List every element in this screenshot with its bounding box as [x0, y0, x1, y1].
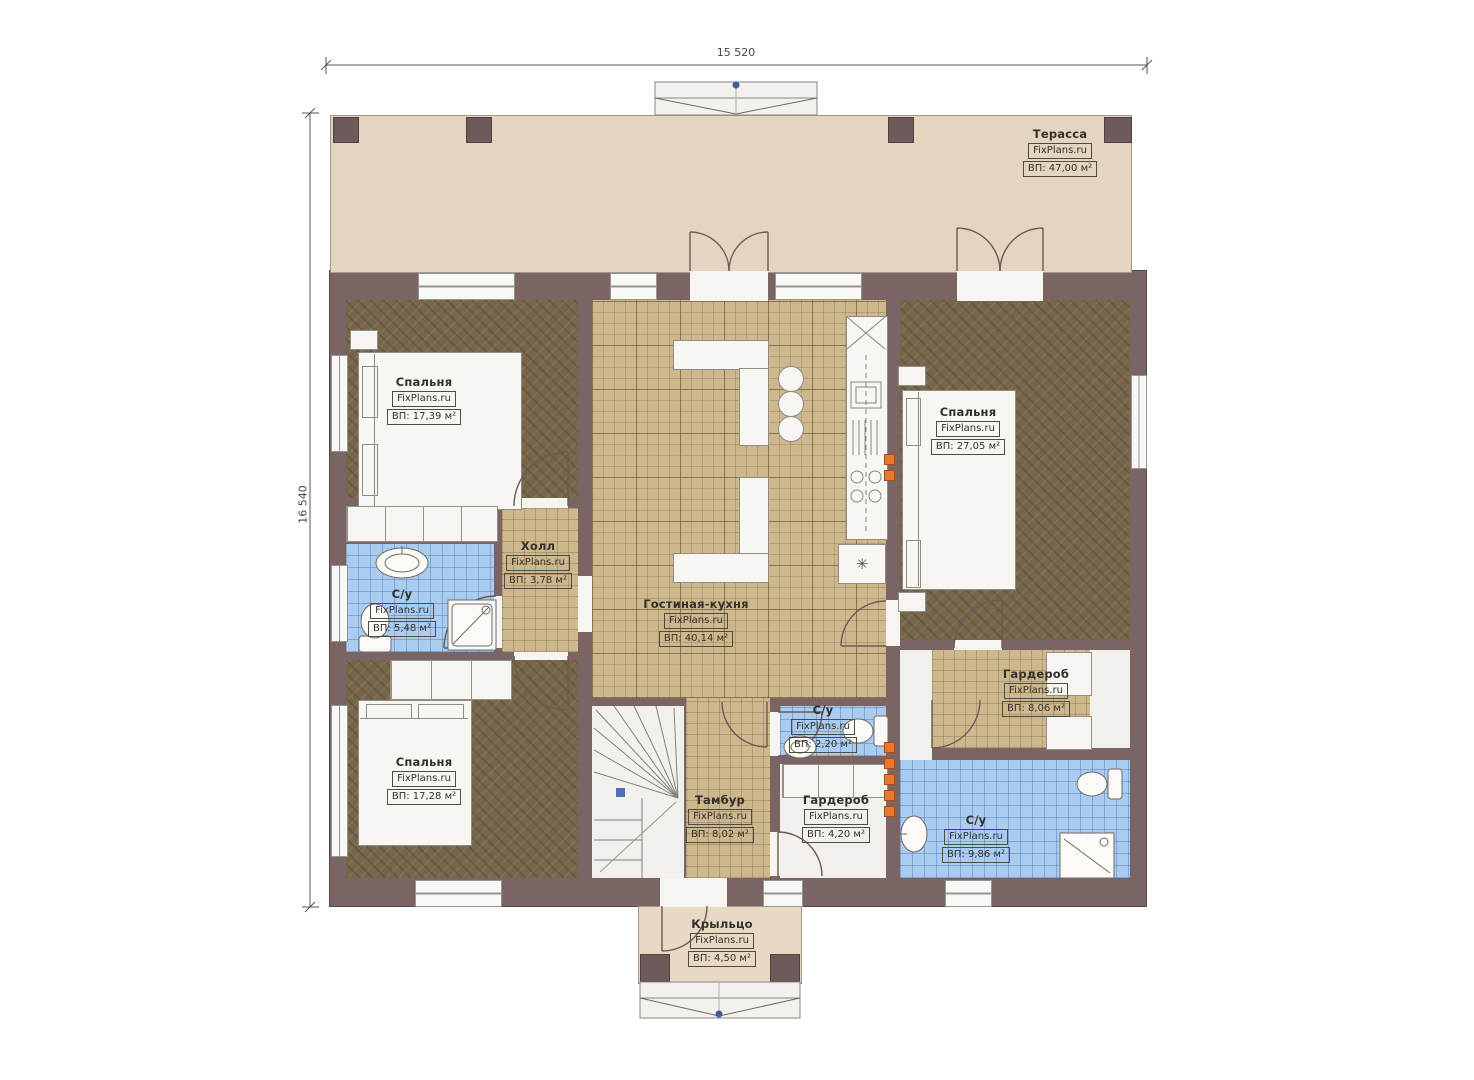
- roof-canopy-top: [655, 82, 817, 116]
- terrace-pillar: [466, 117, 492, 143]
- wall-interior: [592, 698, 686, 706]
- sofa-section: [739, 477, 769, 555]
- cabinet: [1046, 716, 1092, 750]
- dimension-top-label: 15 520: [691, 46, 781, 59]
- room-area: ВП: 17,28 м²: [387, 789, 461, 805]
- room-area: ВП: 47,00 м²: [1023, 161, 1097, 177]
- sofa-section: [673, 340, 769, 370]
- window: [775, 273, 862, 300]
- room-area: ВП: 4,50 м²: [688, 951, 756, 967]
- room-name: Тамбур: [695, 794, 745, 807]
- room-label-terrace: Терасса FixPlans.ru ВП: 47,00 м²: [1012, 128, 1108, 177]
- room-area: ВП: 40,14 м²: [659, 631, 733, 647]
- watermark: FixPlans.ru: [392, 391, 456, 407]
- porch-pillar: [770, 954, 800, 982]
- room-label-living-kitchen: Гостиная-кухня FixPlans.ru ВП: 40,14 м²: [638, 598, 754, 647]
- orange-marker: [884, 454, 895, 465]
- terrace-pillar: [888, 117, 914, 143]
- floor-plan-canvas: 15 520 16 540: [0, 0, 1474, 1080]
- watermark: FixPlans.ru: [1004, 683, 1068, 699]
- door-opening: [494, 596, 502, 648]
- orange-marker: [884, 758, 895, 769]
- room-name: С/у: [966, 814, 987, 827]
- window: [418, 273, 515, 300]
- room-label-hall: Холл FixPlans.ru ВП: 3,78 м²: [498, 540, 578, 589]
- terrace-door-opening: [957, 271, 1043, 301]
- room-area: ВП: 8,02 м²: [686, 827, 754, 843]
- watermark: FixPlans.ru: [392, 771, 456, 787]
- room-name: Гардероб: [1003, 668, 1069, 681]
- room-label-porch: Крыльцо FixPlans.ru ВП: 4,50 м²: [676, 918, 768, 967]
- floor-hallway-right: [900, 650, 932, 760]
- room-label-wardrobe-small: Гардероб FixPlans.ru ВП: 4,20 м²: [798, 794, 874, 843]
- watermark: FixPlans.ru: [506, 555, 570, 571]
- wall-interior: [578, 658, 592, 878]
- nightstand: [898, 592, 926, 612]
- window: [1131, 375, 1147, 469]
- pillow: [366, 704, 412, 719]
- room-name: Гардероб: [803, 794, 869, 807]
- orange-marker: [884, 806, 895, 817]
- kitchen-counter: [846, 316, 888, 540]
- watermark: FixPlans.ru: [1028, 143, 1092, 159]
- door-opening: [578, 576, 592, 632]
- floor-wardrobe-right-niche: [1090, 650, 1130, 748]
- terrace-pillar: [333, 117, 359, 143]
- floor-staircase: [592, 706, 684, 878]
- closet-row: [346, 506, 498, 542]
- window: [763, 880, 803, 907]
- room-area: ВП: 8,06 м²: [1002, 701, 1070, 717]
- wall-stair-divider: [684, 706, 686, 878]
- wall-interior: [932, 748, 1130, 760]
- wall-interior: [886, 698, 900, 878]
- window: [331, 565, 348, 642]
- orange-marker: [884, 774, 895, 785]
- window: [331, 355, 348, 452]
- porch-pillar: [640, 954, 670, 982]
- door-opening: [514, 652, 568, 660]
- room-label-vestibule: Тамбур FixPlans.ru ВП: 8,02 м²: [676, 794, 764, 843]
- sofa-section: [739, 368, 769, 446]
- room-name: С/у: [813, 704, 834, 717]
- watermark: FixPlans.ru: [690, 933, 754, 949]
- dimension-left-label: 16 540: [297, 460, 310, 550]
- terrace-door-opening: [690, 271, 768, 301]
- room-label-bedroom-right: Спальня FixPlans.ru ВП: 27,05 м²: [912, 406, 1024, 455]
- stool: [778, 366, 804, 392]
- room-label-bedroom-bottom-left: Спальня FixPlans.ru ВП: 17,28 м²: [368, 756, 480, 805]
- wall-interior: [900, 640, 1130, 650]
- window: [610, 273, 657, 300]
- room-name: Гостиная-кухня: [643, 598, 748, 611]
- room-label-bedroom-top-left: Спальня FixPlans.ru ВП: 17,39 м²: [368, 376, 480, 425]
- stool: [778, 391, 804, 417]
- room-name: Спальня: [940, 406, 997, 419]
- door-opening: [770, 712, 780, 756]
- room-name: Холл: [521, 540, 555, 553]
- washer-box: ✳: [838, 544, 886, 584]
- orange-marker: [884, 470, 895, 481]
- room-name: С/у: [392, 588, 413, 601]
- room-area: ВП: 5,48 м²: [368, 621, 436, 637]
- washer-icon: ✳: [856, 555, 869, 573]
- watermark: FixPlans.ru: [370, 603, 434, 619]
- room-label-bathroom-right: С/у FixPlans.ru ВП: 9,86 м²: [934, 814, 1018, 863]
- porch-steps: [640, 982, 800, 1018]
- room-label-bathroom-left: С/у FixPlans.ru ВП: 5,48 м²: [362, 588, 442, 637]
- room-area: ВП: 4,20 м²: [802, 827, 870, 843]
- watermark: FixPlans.ru: [804, 809, 868, 825]
- watermark: FixPlans.ru: [936, 421, 1000, 437]
- wardrobe-cabinets: [390, 660, 512, 700]
- pillow: [418, 704, 464, 719]
- watermark: FixPlans.ru: [791, 719, 855, 735]
- pillow: [362, 444, 378, 496]
- watermark: FixPlans.ru: [664, 613, 728, 629]
- nightstand: [898, 366, 926, 386]
- window: [331, 705, 348, 857]
- terrace-pillar: [1104, 117, 1132, 143]
- entrance-door-opening: [660, 878, 727, 907]
- room-name: Спальня: [396, 756, 453, 769]
- wall-interior: [780, 756, 886, 764]
- sofa-section: [673, 553, 769, 583]
- door-opening: [770, 832, 780, 876]
- door-opening: [954, 640, 1002, 650]
- room-label-bathroom-small: С/у FixPlans.ru ВП: 2,20 м²: [790, 704, 856, 753]
- orange-marker: [884, 742, 895, 753]
- room-area: ВП: 17,39 м²: [387, 409, 461, 425]
- watermark: FixPlans.ru: [944, 829, 1008, 845]
- room-name: Спальня: [396, 376, 453, 389]
- room-label-wardrobe-right: Гардероб FixPlans.ru ВП: 8,06 м²: [994, 668, 1078, 717]
- room-name: Терасса: [1033, 128, 1087, 141]
- orange-marker: [884, 790, 895, 801]
- bed-headboard-line: [360, 718, 468, 719]
- room-area: ВП: 2,20 м²: [789, 737, 857, 753]
- watermark: FixPlans.ru: [688, 809, 752, 825]
- room-name: Крыльцо: [691, 918, 753, 931]
- window: [945, 880, 992, 907]
- door-opening: [514, 498, 568, 508]
- room-area: ВП: 27,05 м²: [931, 439, 1005, 455]
- room-area: ВП: 9,86 м²: [942, 847, 1010, 863]
- window: [415, 880, 502, 907]
- nightstand: [350, 330, 378, 350]
- room-area: ВП: 3,78 м²: [504, 573, 572, 589]
- stool: [778, 416, 804, 442]
- floor-vestibule: [686, 698, 770, 878]
